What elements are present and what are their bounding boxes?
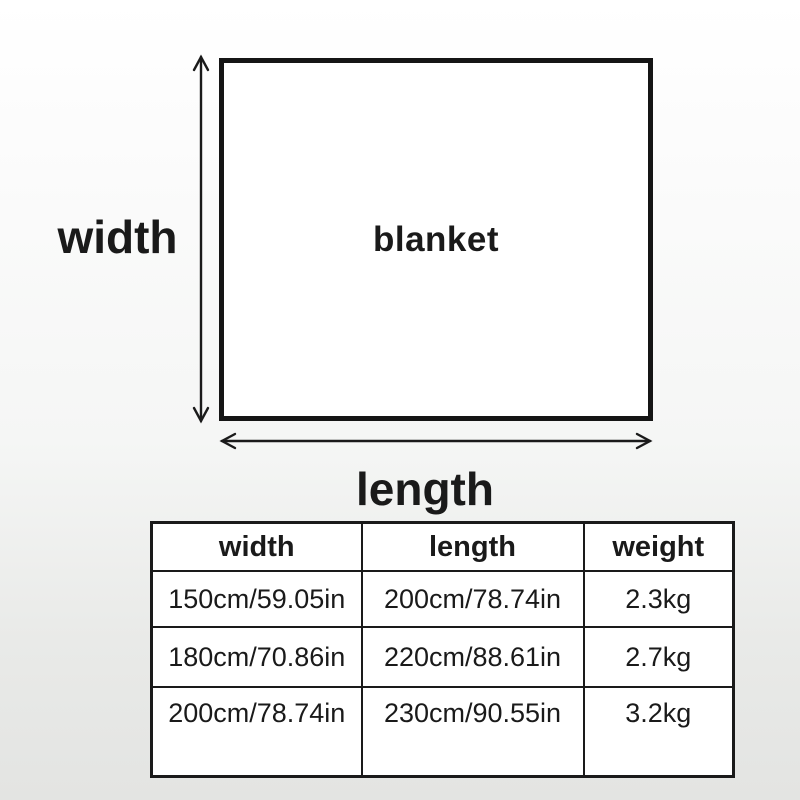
blanket-rectangle: blanket	[219, 58, 653, 421]
length-dimension-label: length	[320, 462, 530, 516]
cell-width-value: 180cm/70.86in	[152, 627, 362, 687]
column-header-length: length	[362, 523, 584, 572]
size-table-header-row: width length weight	[152, 523, 734, 572]
cell-length-value: 230cm/90.55in	[362, 687, 584, 777]
length-dimension-arrow-icon	[218, 430, 654, 452]
cell-length-value: 200cm/78.74in	[362, 571, 584, 627]
cell-length-value: 220cm/88.61in	[362, 627, 584, 687]
cell-weight-value: 3.2kg	[584, 687, 734, 777]
cell-width-value: 150cm/59.05in	[152, 571, 362, 627]
blanket-label: blanket	[373, 220, 499, 260]
size-chart-graphic: blanket width length width length w	[0, 0, 800, 800]
table-row: 180cm/70.86in 220cm/88.61in 2.7kg	[152, 627, 734, 687]
column-header-width: width	[152, 523, 362, 572]
cell-weight-value: 2.7kg	[584, 627, 734, 687]
cell-width-value: 200cm/78.74in	[152, 687, 362, 777]
column-header-weight: weight	[584, 523, 734, 572]
cell-weight-value: 2.3kg	[584, 571, 734, 627]
table-row: 200cm/78.74in 230cm/90.55in 3.2kg	[152, 687, 734, 777]
table-row: 150cm/59.05in 200cm/78.74in 2.3kg	[152, 571, 734, 627]
size-table: width length weight 150cm/59.05in 200cm/…	[150, 521, 735, 778]
width-dimension-label: width	[0, 210, 235, 264]
